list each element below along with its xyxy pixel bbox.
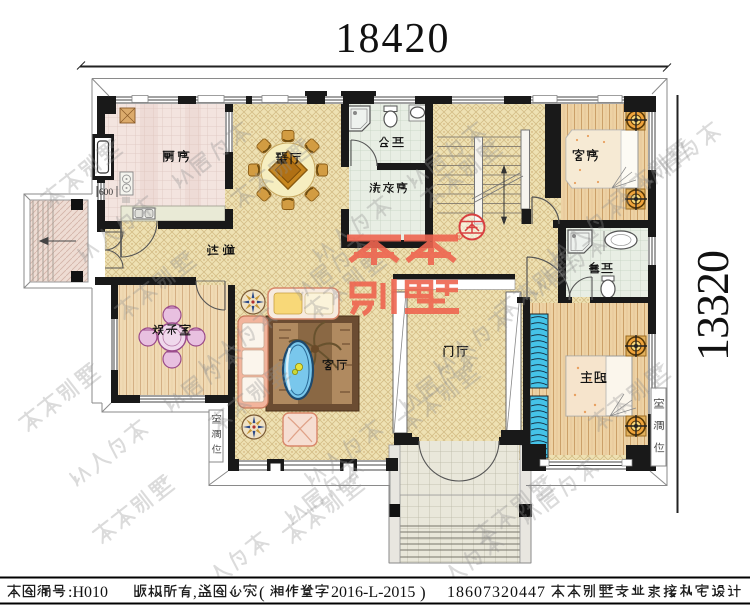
svg-text:2016-L-2015: 2016-L-2015 bbox=[331, 584, 415, 601]
svg-text:18607320447: 18607320447 bbox=[447, 584, 546, 601]
svg-text:18420: 18420 bbox=[336, 16, 451, 62]
svg-text:,: , bbox=[193, 585, 197, 601]
svg-text:): ) bbox=[420, 583, 426, 602]
svg-text:600: 600 bbox=[99, 188, 114, 198]
svg-text::H010: :H010 bbox=[68, 584, 108, 601]
svg-text:(: ( bbox=[259, 583, 265, 602]
svg-text:13320: 13320 bbox=[687, 251, 738, 361]
